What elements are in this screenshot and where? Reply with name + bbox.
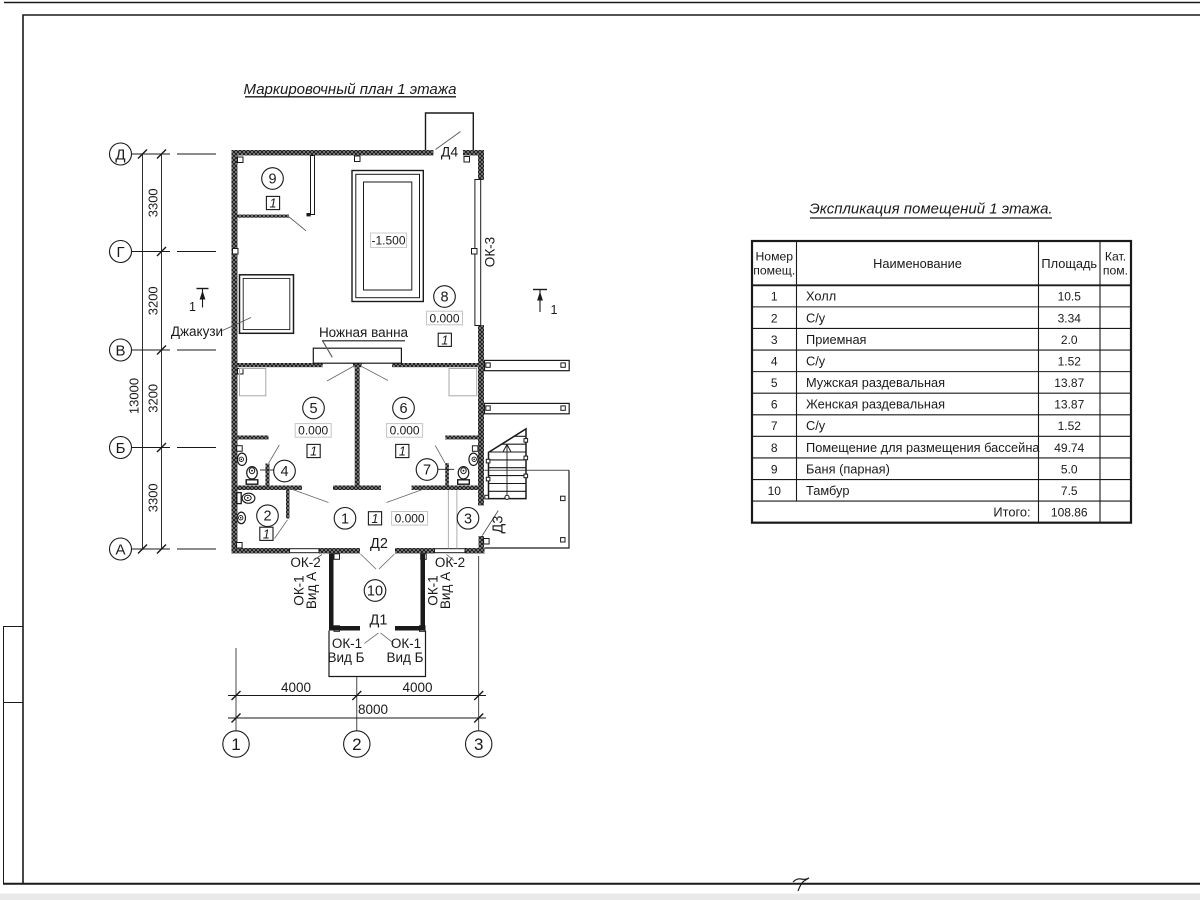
svg-text:1: 1 [441, 333, 448, 347]
svg-text:13.87: 13.87 [1054, 376, 1084, 390]
svg-text:Ножная ванна: Ножная ванна [319, 325, 409, 340]
svg-text:8000: 8000 [358, 702, 388, 717]
svg-text:3: 3 [464, 511, 472, 527]
svg-text:Д2: Д2 [370, 536, 388, 552]
svg-text:8: 8 [440, 290, 448, 306]
svg-text:0.000: 0.000 [429, 311, 459, 325]
svg-text:6: 6 [399, 401, 407, 417]
svg-text:13.87: 13.87 [1054, 398, 1084, 412]
svg-text:А: А [115, 542, 125, 559]
svg-text:ОК-1: ОК-1 [391, 636, 421, 651]
svg-text:49.74: 49.74 [1054, 441, 1084, 455]
svg-text:1: 1 [270, 197, 277, 211]
svg-text:1: 1 [551, 303, 558, 317]
svg-text:5.0: 5.0 [1061, 462, 1078, 476]
svg-text:3200: 3200 [146, 384, 161, 413]
svg-text:7: 7 [423, 463, 431, 479]
svg-text:Вид А: Вид А [438, 572, 453, 609]
svg-text:9: 9 [771, 462, 778, 476]
svg-text:10: 10 [768, 484, 782, 498]
svg-text:4: 4 [280, 464, 288, 480]
svg-text:Д1: Д1 [370, 613, 388, 629]
svg-text:108.86: 108.86 [1051, 505, 1088, 519]
svg-text:1: 1 [771, 290, 778, 304]
svg-text:9: 9 [268, 172, 276, 188]
svg-text:Кат.: Кат. [1105, 250, 1126, 264]
svg-text:10: 10 [367, 584, 383, 600]
svg-text:ОК-1: ОК-1 [332, 636, 362, 651]
svg-text:2: 2 [263, 509, 271, 525]
svg-text:Г: Г [116, 244, 124, 261]
svg-text:-1.500: -1.500 [371, 233, 405, 247]
svg-text:0.000: 0.000 [395, 512, 425, 526]
svg-text:7: 7 [771, 419, 778, 433]
svg-text:Б: Б [116, 440, 126, 457]
svg-text:5: 5 [309, 401, 317, 417]
svg-text:Итого:: Итого: [993, 504, 1030, 519]
svg-text:Наименование: Наименование [873, 256, 962, 271]
svg-text:1: 1 [231, 735, 240, 754]
svg-text:Мужская раздевальная: Мужская раздевальная [806, 375, 945, 390]
svg-text:13000: 13000 [127, 378, 142, 414]
svg-text:1: 1 [310, 445, 317, 459]
svg-text:5: 5 [771, 376, 778, 390]
svg-text:0.000: 0.000 [298, 424, 328, 438]
svg-text:1: 1 [263, 527, 270, 541]
svg-text:Д: Д [115, 147, 125, 164]
svg-text:1: 1 [399, 445, 406, 459]
svg-text:Приемная: Приемная [806, 332, 867, 347]
svg-text:2: 2 [352, 735, 361, 754]
svg-text:3300: 3300 [146, 483, 161, 512]
svg-text:Вид А: Вид А [304, 572, 319, 609]
svg-text:пом.: пом. [1103, 264, 1128, 278]
svg-text:Номер: Номер [755, 250, 793, 264]
svg-text:1: 1 [341, 511, 349, 527]
svg-text:0.000: 0.000 [390, 424, 420, 438]
svg-text:Площадь: Площадь [1041, 256, 1097, 271]
svg-text:Маркировочный план 1 этажа: Маркировочный план 1 этажа [244, 81, 457, 98]
svg-text:Помещение для размещения бассе: Помещение для размещения бассейна [806, 440, 1040, 455]
svg-text:Холл: Холл [806, 289, 836, 304]
svg-text:Тамбур: Тамбур [806, 483, 849, 498]
svg-text:Д3: Д3 [491, 516, 507, 534]
svg-text:6: 6 [771, 398, 778, 412]
svg-text:3.34: 3.34 [1058, 311, 1082, 325]
svg-text:1: 1 [372, 512, 379, 526]
svg-text:3200: 3200 [146, 286, 161, 315]
svg-text:3300: 3300 [146, 188, 161, 217]
svg-text:ОК-2: ОК-2 [290, 555, 320, 570]
svg-text:1.52: 1.52 [1058, 354, 1082, 368]
svg-text:ОК-3: ОК-3 [483, 237, 498, 267]
svg-text:4000: 4000 [402, 680, 432, 695]
svg-text:Вид Б: Вид Б [386, 650, 423, 665]
svg-text:4000: 4000 [281, 680, 311, 695]
svg-text:С/у: С/у [806, 310, 826, 325]
svg-text:Женская раздевальная: Женская раздевальная [806, 397, 945, 412]
svg-text:Джакузи: Джакузи [171, 324, 223, 339]
svg-text:2: 2 [771, 311, 778, 325]
svg-text:С/у: С/у [806, 353, 826, 368]
svg-text:1.52: 1.52 [1058, 419, 1082, 433]
svg-text:8: 8 [771, 441, 778, 455]
svg-text:помещ.: помещ. [753, 264, 795, 278]
svg-text:3: 3 [474, 735, 483, 754]
svg-text:3: 3 [771, 333, 778, 347]
svg-text:10.5: 10.5 [1058, 290, 1082, 304]
svg-text:Экспликация помещений 1 этажа.: Экспликация помещений 1 этажа. [809, 201, 1052, 218]
svg-text:1: 1 [189, 300, 196, 314]
svg-text:Д4: Д4 [441, 144, 458, 160]
svg-text:Вид Б: Вид Б [327, 650, 364, 665]
svg-text:2.0: 2.0 [1061, 333, 1078, 347]
svg-text:7.5: 7.5 [1061, 484, 1078, 498]
svg-text:С/у: С/у [806, 418, 826, 433]
svg-text:4: 4 [771, 354, 778, 368]
svg-text:В: В [115, 343, 125, 360]
svg-text:Баня (парная): Баня (парная) [806, 461, 890, 476]
